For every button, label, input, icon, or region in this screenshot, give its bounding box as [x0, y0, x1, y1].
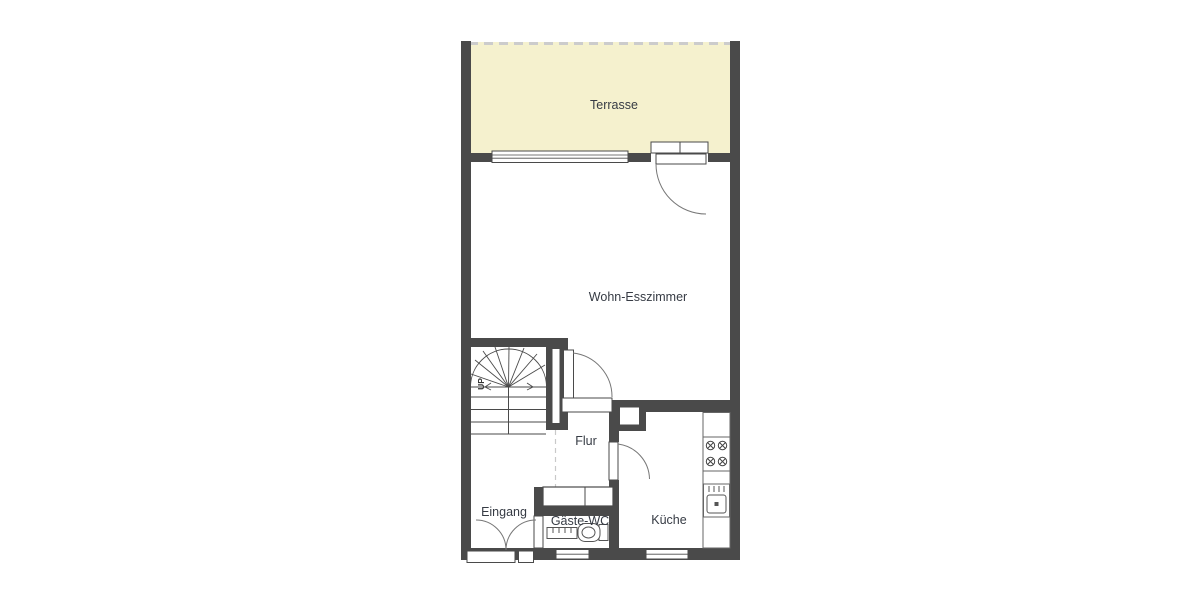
terrace-window	[492, 151, 628, 163]
stair-right-wall-gap	[553, 349, 560, 423]
wall-right	[730, 41, 740, 560]
floor-plan-drawing: UP	[0, 0, 1200, 600]
duct-shaft-inner	[620, 408, 639, 425]
kitchen-counter	[703, 413, 730, 549]
room-label-gaeste-wc: Gäste-WC	[551, 514, 609, 528]
entrance-door-left-swing-arc	[476, 520, 506, 550]
stair-direction-arrow-right	[527, 383, 533, 390]
wc-door-leaf	[534, 516, 543, 548]
washbasin-icon	[547, 528, 577, 539]
wc-window	[556, 550, 589, 560]
wall-left	[461, 41, 471, 560]
living-hall-door-leaf	[564, 350, 574, 398]
living-hall-door-swing-arc	[573, 353, 612, 397]
room-label-flur: Flur	[575, 434, 597, 448]
room-label-eingang: Eingang	[481, 505, 527, 519]
staircase: UP	[461, 338, 568, 434]
kitchen-window	[646, 550, 688, 560]
stair-up-label: UP	[476, 378, 486, 390]
entrance-threshold	[467, 551, 515, 563]
entrance-door	[467, 520, 536, 563]
terrace-door-leaf	[656, 154, 706, 164]
living-hall-door-threshold	[562, 398, 612, 412]
terrace-door	[651, 142, 708, 214]
wc-left-wall	[534, 487, 543, 516]
room-label-wohn-esszimmer: Wohn-Esszimmer	[589, 290, 687, 304]
hall-wardrobe	[543, 487, 613, 506]
entrance-door-right-swing-arc	[506, 520, 536, 550]
kitchen-door-leaf	[609, 442, 618, 480]
terrace-door-swing-arc	[656, 164, 706, 214]
living-hall-door	[562, 350, 612, 412]
stove-icon	[703, 437, 730, 471]
kitchen-fixtures	[703, 413, 730, 549]
kitchen-door-swing-arc	[618, 444, 650, 479]
room-label-terrasse: Terrasse	[590, 98, 638, 112]
kitchen-door	[609, 442, 650, 480]
room-label-kueche: Küche	[651, 513, 686, 527]
sink-icon	[704, 484, 730, 517]
stair-treads	[471, 387, 546, 434]
floor-plan: UP	[0, 0, 1200, 600]
entrance-sidelight	[519, 551, 534, 563]
